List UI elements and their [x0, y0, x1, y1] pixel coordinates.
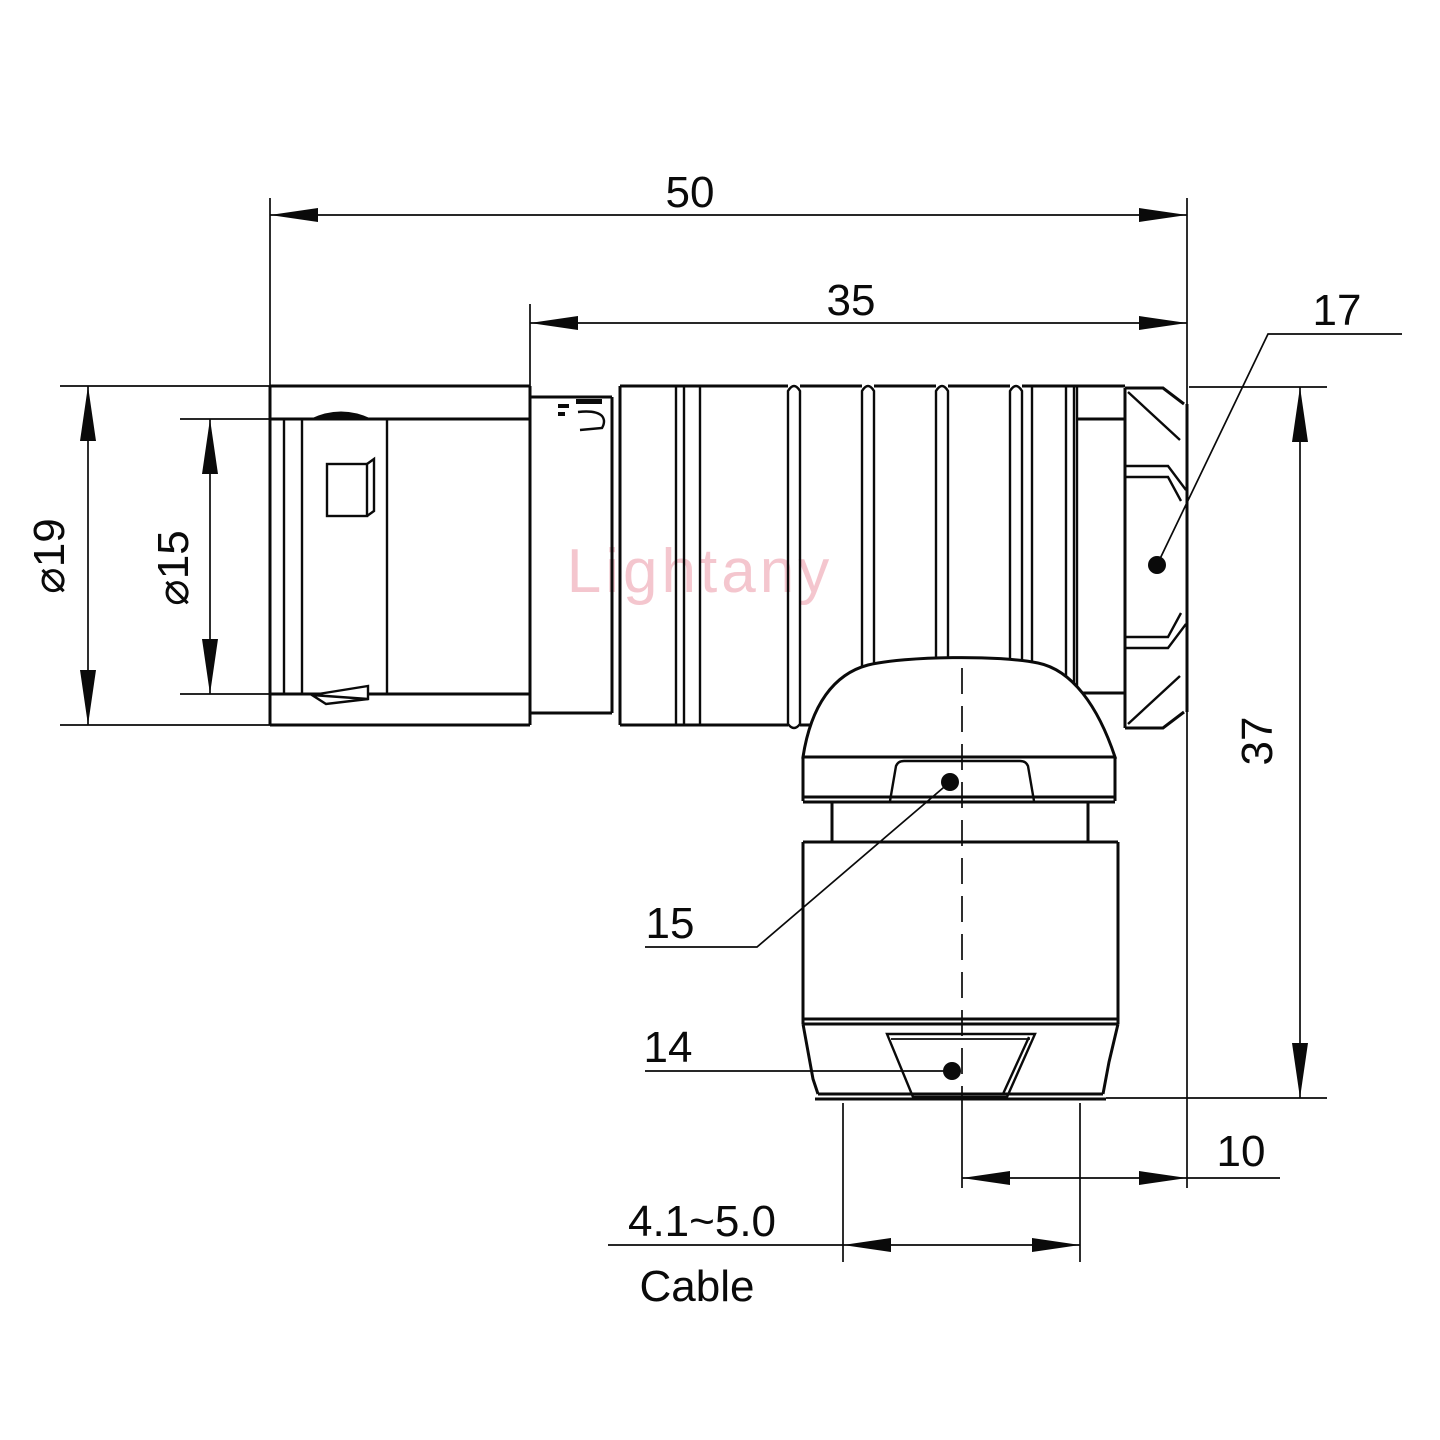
connector-technical-drawing: Lightany: [0, 0, 1440, 1440]
dim-text-clamp-flats: 14: [644, 1023, 693, 1072]
leader-dot: [943, 1062, 961, 1080]
dim-text-nut-flats: 15: [646, 899, 695, 948]
dim-text-cable-label: Cable: [640, 1262, 755, 1311]
dim-text-inner-diameter: ⌀15: [149, 530, 198, 605]
leader-dot: [1148, 556, 1166, 574]
dim-text-cable-range: 4.1~5.0: [628, 1197, 776, 1246]
dim-text-total-length: 50: [666, 168, 715, 217]
leader-dot: [941, 773, 959, 791]
dim-text-height: 37: [1233, 717, 1282, 766]
dim-text-hex-width: 17: [1313, 286, 1362, 335]
dim-text-body-length: 35: [827, 276, 876, 325]
keyway-window: [327, 464, 367, 516]
dim-text-axis-offset: 10: [1217, 1127, 1266, 1176]
dim-text-outer-diameter: ⌀19: [25, 518, 74, 593]
